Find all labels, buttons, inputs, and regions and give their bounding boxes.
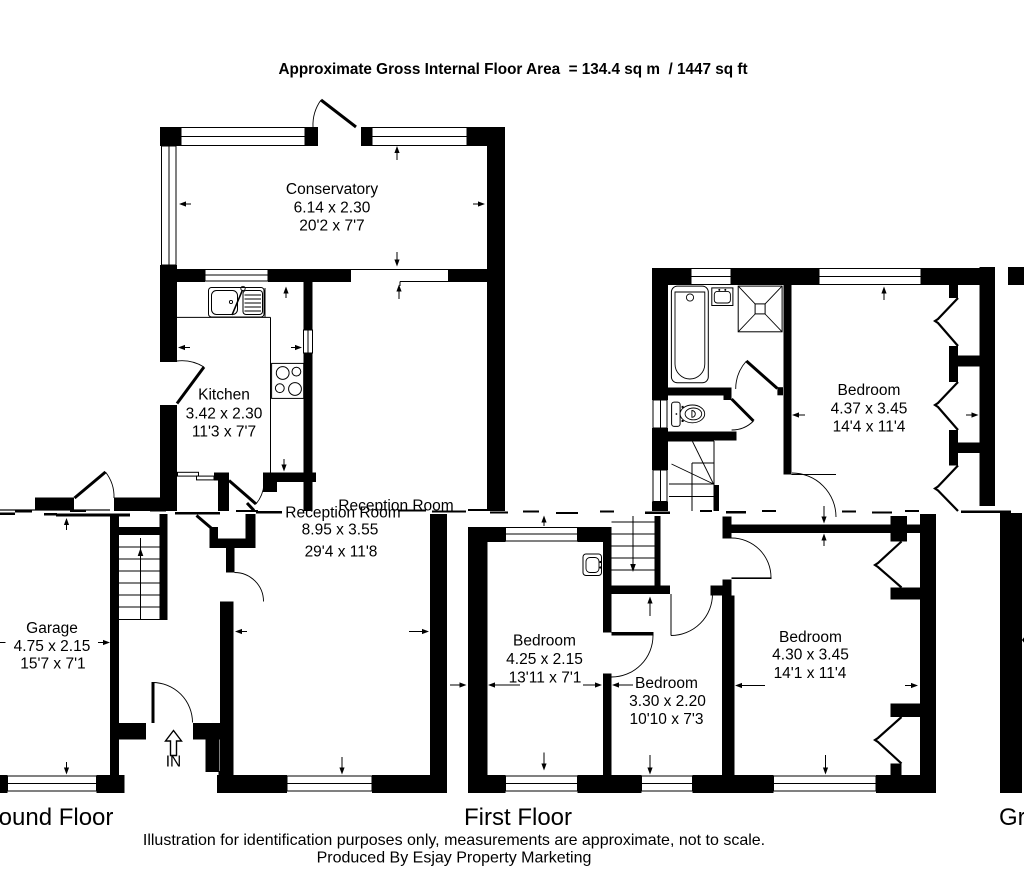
svg-text:Ground Floor: Ground Floor [999, 804, 1024, 831]
svg-text:4.30 x 3.45: 4.30 x 3.45 [772, 647, 849, 664]
svg-text:13'11 x 7'1: 13'11 x 7'1 [509, 670, 582, 687]
svg-text:4.75 x 2.15: 4.75 x 2.15 [14, 638, 91, 655]
svg-text:Ground Floor: Ground Floor [0, 804, 113, 831]
svg-text:14'1 x 11'4: 14'1 x 11'4 [774, 665, 847, 682]
svg-text:Garage: Garage [26, 620, 78, 637]
svg-text:4.25 x 2.15: 4.25 x 2.15 [506, 651, 583, 668]
svg-text:10'10 x 7'3: 10'10 x 7'3 [629, 711, 703, 728]
svg-text:Produced By Esjay Property Mar: Produced By Esjay Property Marketing [317, 850, 592, 867]
svg-text:Approximate Gross Internal Flo: Approximate Gross Internal Floor Area = … [278, 61, 747, 78]
svg-text:Bedroom: Bedroom [838, 382, 901, 399]
svg-text:4.37 x 3.45: 4.37 x 3.45 [831, 401, 908, 418]
svg-text:11'3 x 7'7: 11'3 x 7'7 [192, 424, 256, 441]
svg-text:First Floor: First Floor [464, 804, 572, 831]
svg-text:Reception Room: Reception Room [285, 505, 400, 522]
svg-text:Illustration for identificatio: Illustration for identification purposes… [143, 832, 765, 849]
svg-text:3.30 x 2.20: 3.30 x 2.20 [629, 693, 706, 710]
svg-text:14'4 x 11'4: 14'4 x 11'4 [833, 419, 906, 436]
svg-text:Kitchen: Kitchen [198, 387, 250, 404]
svg-text:20'2 x 7'7: 20'2 x 7'7 [299, 218, 364, 235]
svg-text:Bedroom: Bedroom [779, 629, 842, 646]
svg-text:3.42 x 2.30: 3.42 x 2.30 [186, 406, 263, 423]
svg-text:IN: IN [166, 754, 182, 771]
svg-text:29'4 x 11'8: 29'4 x 11'8 [305, 544, 378, 561]
svg-text:Bedroom: Bedroom [635, 675, 698, 692]
svg-text:Conservatory: Conservatory [286, 181, 378, 198]
svg-text:6.14 x 2.30: 6.14 x 2.30 [294, 200, 371, 217]
svg-text:8.95 x 3.55: 8.95 x 3.55 [302, 522, 379, 539]
svg-text:Bedroom: Bedroom [513, 633, 576, 650]
svg-text:15'7 x 7'1: 15'7 x 7'1 [20, 656, 85, 673]
